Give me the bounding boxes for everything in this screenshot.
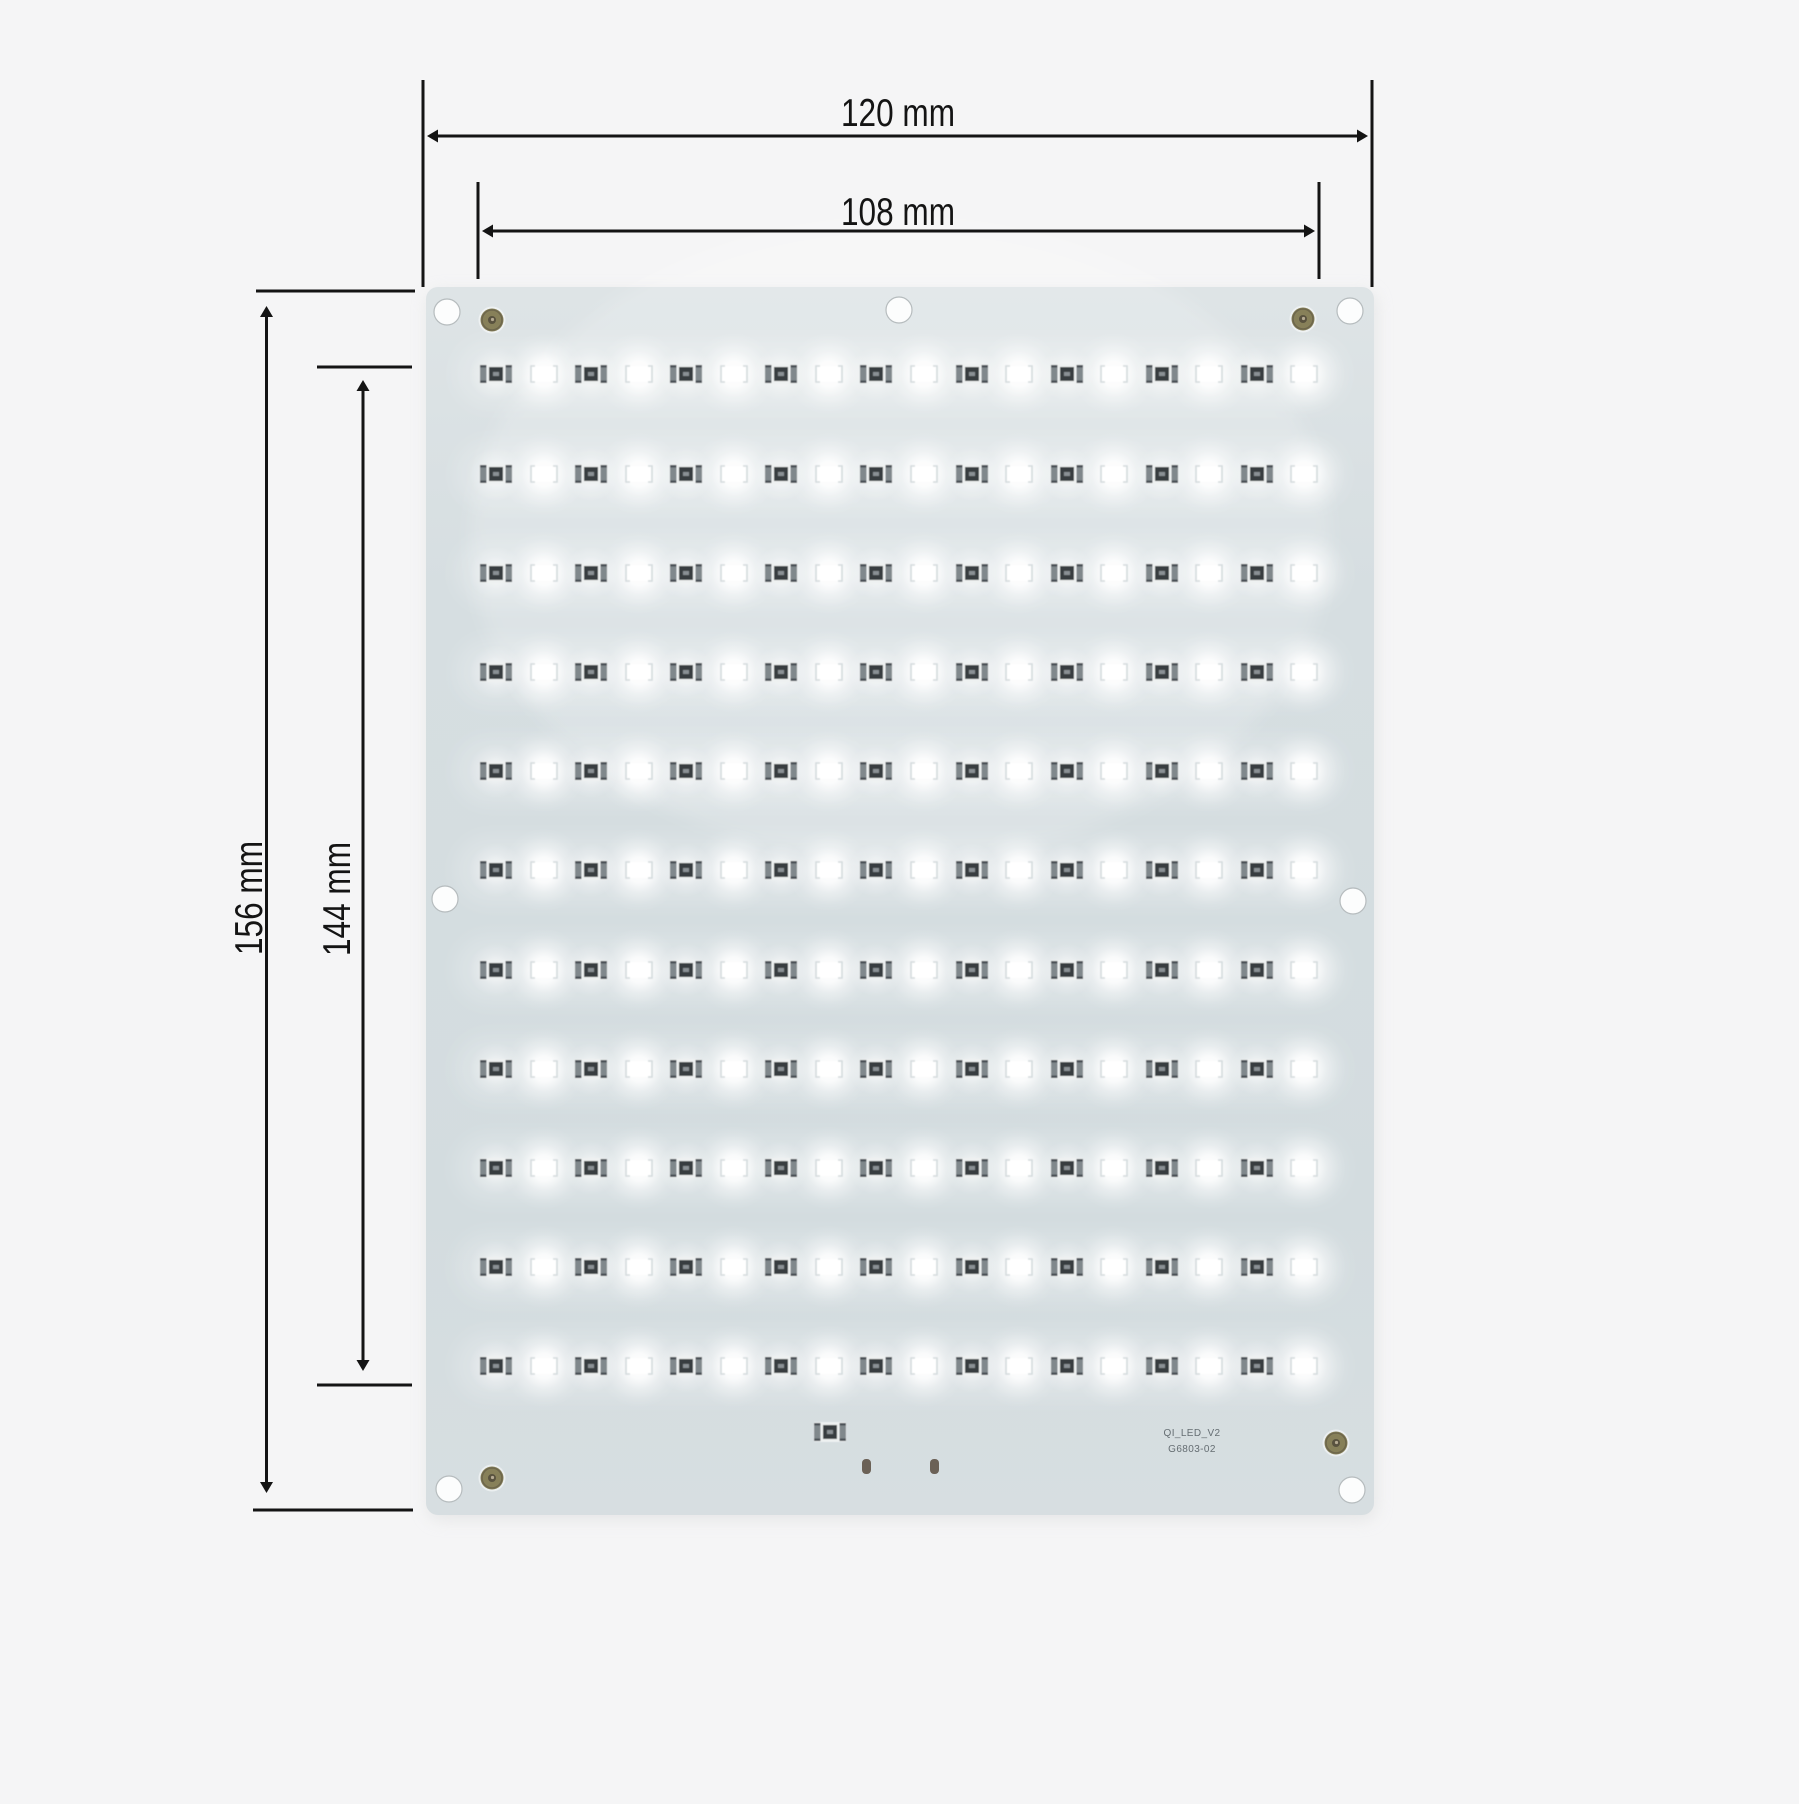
svg-text:144 mm: 144 mm xyxy=(316,842,359,956)
svg-text:120 mm: 120 mm xyxy=(841,92,955,135)
svg-text:G6803-02: G6803-02 xyxy=(1168,1444,1216,1455)
svg-text:108 mm: 108 mm xyxy=(841,191,955,234)
svg-text:QI_LED_V2: QI_LED_V2 xyxy=(1164,1428,1221,1439)
svg-text:156 mm: 156 mm xyxy=(228,841,271,955)
